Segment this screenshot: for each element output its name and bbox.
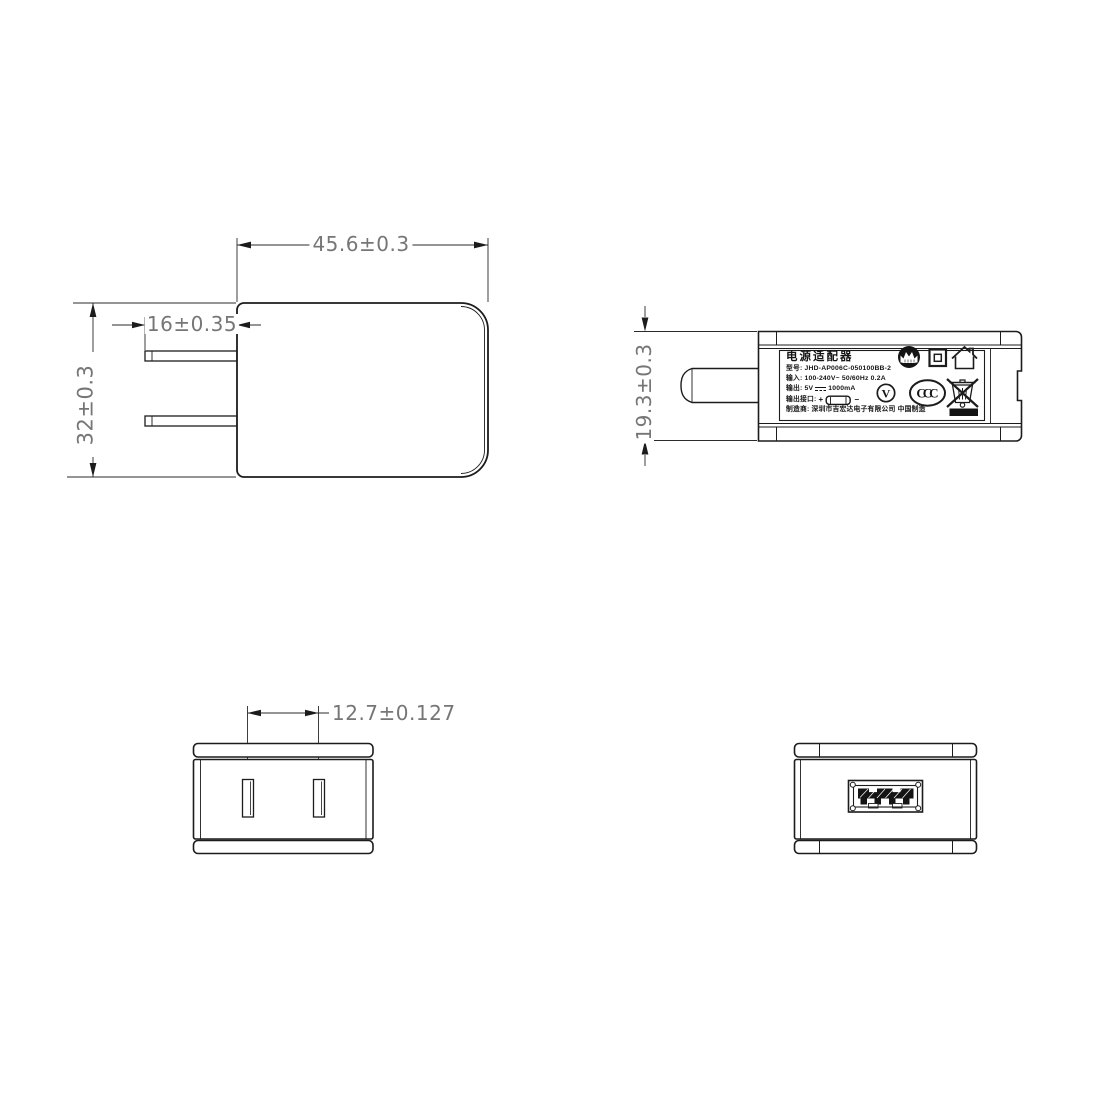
usb-port [849,781,923,813]
label-output: 输出: 5V 1000mA [786,386,856,393]
drawing-linework: V CCC [0,0,1100,1100]
minus-sign: − [854,396,859,404]
label-port-text: 输出接口: [786,397,816,404]
side-prong [681,369,759,403]
label-port: 输出接口: + − [786,395,859,406]
front-body [237,303,488,477]
usbend-bottom-cap [795,841,977,854]
bottom-bottom-cap [194,841,374,854]
bottom-view [194,706,374,854]
plus-sign: + [818,396,823,404]
usb-tongue [858,789,914,799]
ccc-letters: CCC [916,386,938,401]
dc-symbol [815,387,826,391]
bottom-body [194,760,374,840]
bottom-prong-right [314,780,325,818]
bottom-prong-left [243,780,254,818]
label-output-suffix: 1000mA [828,386,855,393]
energy-black-bar [950,409,979,417]
label-model: 型号: JHD-AP006C-050100BB-2 [786,366,891,373]
dim-side-thickness: 19.3±0.3 [634,340,654,443]
technical-drawing-page: V CCC [0,0,1100,1100]
front-prong-top [145,351,237,361]
efficiency-v-letter: V [882,387,891,401]
dim-front-prong-length: 16±0.35 [145,314,239,334]
dim-front-height: 32±0.3 [76,362,97,449]
dim-front-width: 45.6±0.3 [309,234,412,254]
usb-tongue-notch-left [869,789,877,793]
label-manufacturer: 制造商: 深圳市吉宏达电子有限公司 中国制造 [786,407,926,414]
bottom-top-cap [194,744,374,758]
usb-plug-icon [825,395,852,406]
dim-prong-spacing: 12.7±0.127 [332,703,456,723]
usb-end-view [795,744,977,854]
label-output-prefix: 输出: 5V [786,386,813,393]
cqc-mark-icon [898,346,920,368]
front-view [67,238,488,477]
front-prong-bottom [145,416,237,426]
double-insulation-icon [930,350,947,367]
label-input: 输入: 100-240V~ 50/60Hz 0.2A [786,376,886,383]
usbend-top-cap [795,744,977,758]
label-title: 电源适配器 [786,352,854,364]
usb-tongue-notch-right [893,789,901,793]
